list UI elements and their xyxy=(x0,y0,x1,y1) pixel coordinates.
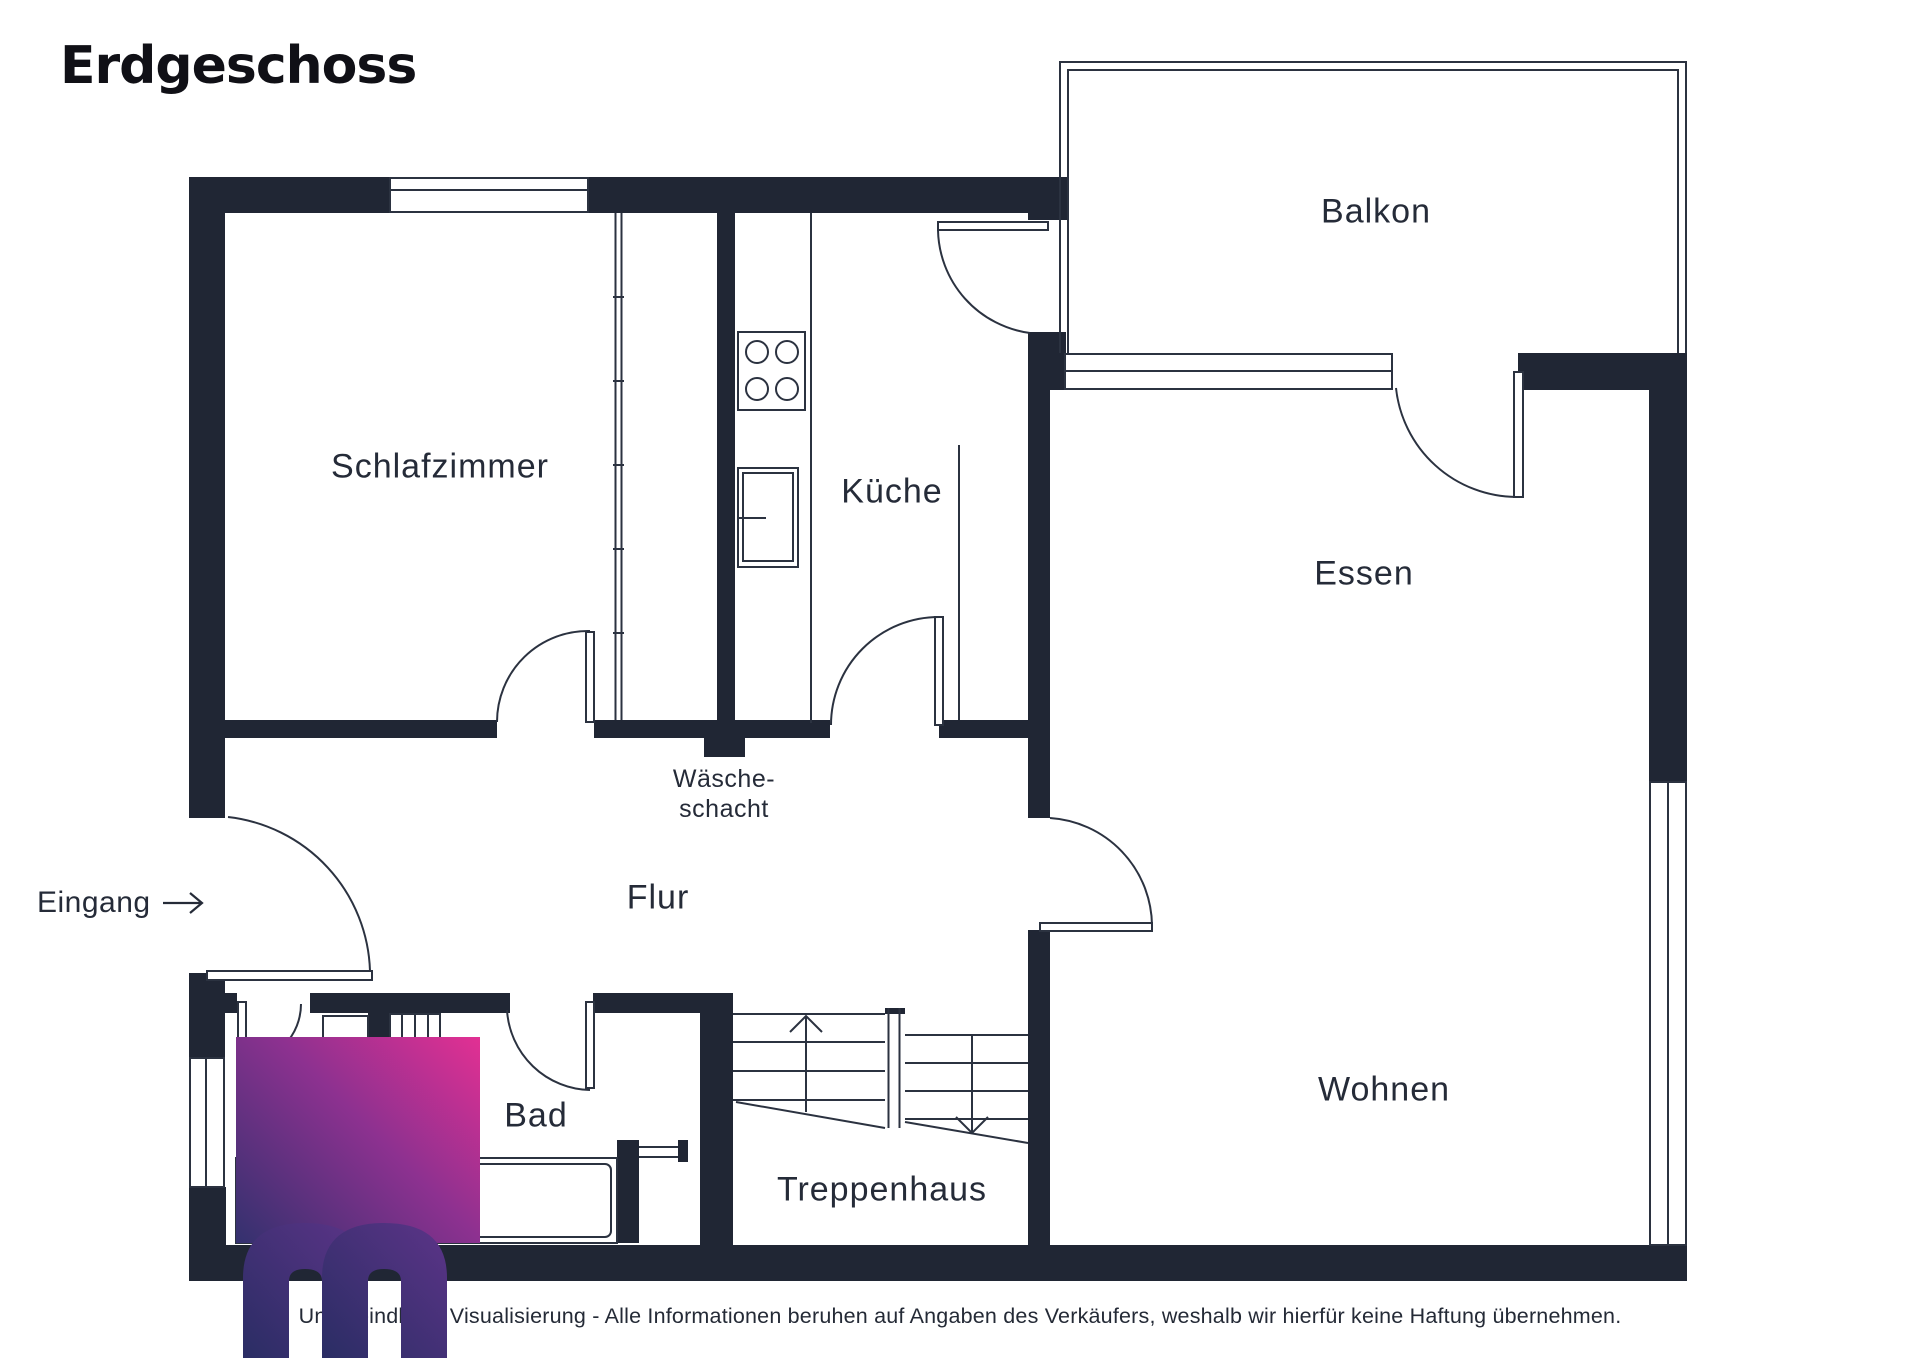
wc-pass-window xyxy=(639,1147,678,1157)
room-label-treppenhaus: Treppenhaus xyxy=(777,1171,987,1210)
wall-left-mid xyxy=(189,973,225,1058)
door-kitchen xyxy=(831,617,943,725)
window-balcony-dining xyxy=(1065,353,1392,390)
page-title: Erdgeschoss xyxy=(60,36,416,96)
wall-wc-stub xyxy=(617,1140,639,1243)
stair-break-line xyxy=(736,1102,1028,1143)
watermark-m-icon xyxy=(243,1223,447,1358)
door-hall-living xyxy=(1040,818,1152,931)
room-label-schlafzimmer: Schlafzimmer xyxy=(331,448,549,487)
wall-stairwell-west xyxy=(700,1013,733,1245)
wall-bath-north-a xyxy=(310,993,368,1013)
wall-left-upper xyxy=(189,177,225,818)
entrance-label: Eingang xyxy=(37,886,207,920)
room-label-wohnen: Wohnen xyxy=(1318,1071,1450,1110)
wall-living-west-lower xyxy=(1028,930,1050,1245)
wall-top xyxy=(189,177,1067,213)
stove-icon xyxy=(738,332,805,410)
door-kitchen-balcony xyxy=(938,222,1048,333)
entrance-text: Eingang xyxy=(37,886,151,920)
floor-plan-page: Erdgeschoss Schlafzimmer Küche Balkon Es… xyxy=(0,0,1920,1358)
stair-treads-up-run xyxy=(733,1042,885,1100)
doors xyxy=(207,222,1523,1090)
wall-bath-north-stub xyxy=(368,993,390,1042)
wall-kitchen-south xyxy=(939,720,1050,738)
door-entrance xyxy=(207,817,372,980)
room-label-kueche: Küche xyxy=(841,473,942,512)
window-left-bath xyxy=(189,1058,225,1187)
wall-balcony-south-right xyxy=(1518,353,1687,390)
waescheschacht-line1: Wäsche- xyxy=(673,764,775,794)
room-label-balkon: Balkon xyxy=(1321,193,1431,232)
wall-bath-north-b xyxy=(390,993,510,1013)
door-balcony-dining xyxy=(1396,372,1523,497)
window-bedroom-north xyxy=(390,177,588,213)
arrow-right-icon xyxy=(161,890,207,916)
sink-icon xyxy=(738,468,798,567)
stair-treads-down-run xyxy=(905,1035,1028,1119)
laundry-chute-shaft xyxy=(704,738,745,757)
door-bedroom xyxy=(497,631,594,722)
staircase xyxy=(733,1008,1028,1143)
door-wc xyxy=(507,1002,594,1090)
stair-divider xyxy=(889,1008,900,1128)
window-right-living xyxy=(1649,782,1687,1245)
wall-bedroom-south-a xyxy=(225,720,497,738)
wardrobe-partition xyxy=(613,213,624,720)
room-label-waescheschacht: Wäsche- schacht xyxy=(673,764,775,824)
wall-hall-south-stub xyxy=(225,993,237,1013)
wall-wc-block xyxy=(678,1140,688,1162)
wall-right xyxy=(1649,390,1687,782)
stairs-up-arrow-icon xyxy=(790,1016,822,1112)
wall-pillar-kitchen-balcony xyxy=(1028,177,1067,220)
wall-hall-south-b xyxy=(593,993,733,1013)
wall-living-west-upper xyxy=(1028,390,1050,818)
watermark-logo xyxy=(236,1037,480,1243)
room-label-essen: Essen xyxy=(1314,555,1414,594)
room-label-flur: Flur xyxy=(627,879,690,918)
waescheschacht-line2: schacht xyxy=(673,794,775,824)
wall-bedroom-kitchen xyxy=(717,213,735,720)
wall-bedroom-south-b xyxy=(594,720,830,738)
room-label-bad: Bad xyxy=(504,1097,568,1136)
